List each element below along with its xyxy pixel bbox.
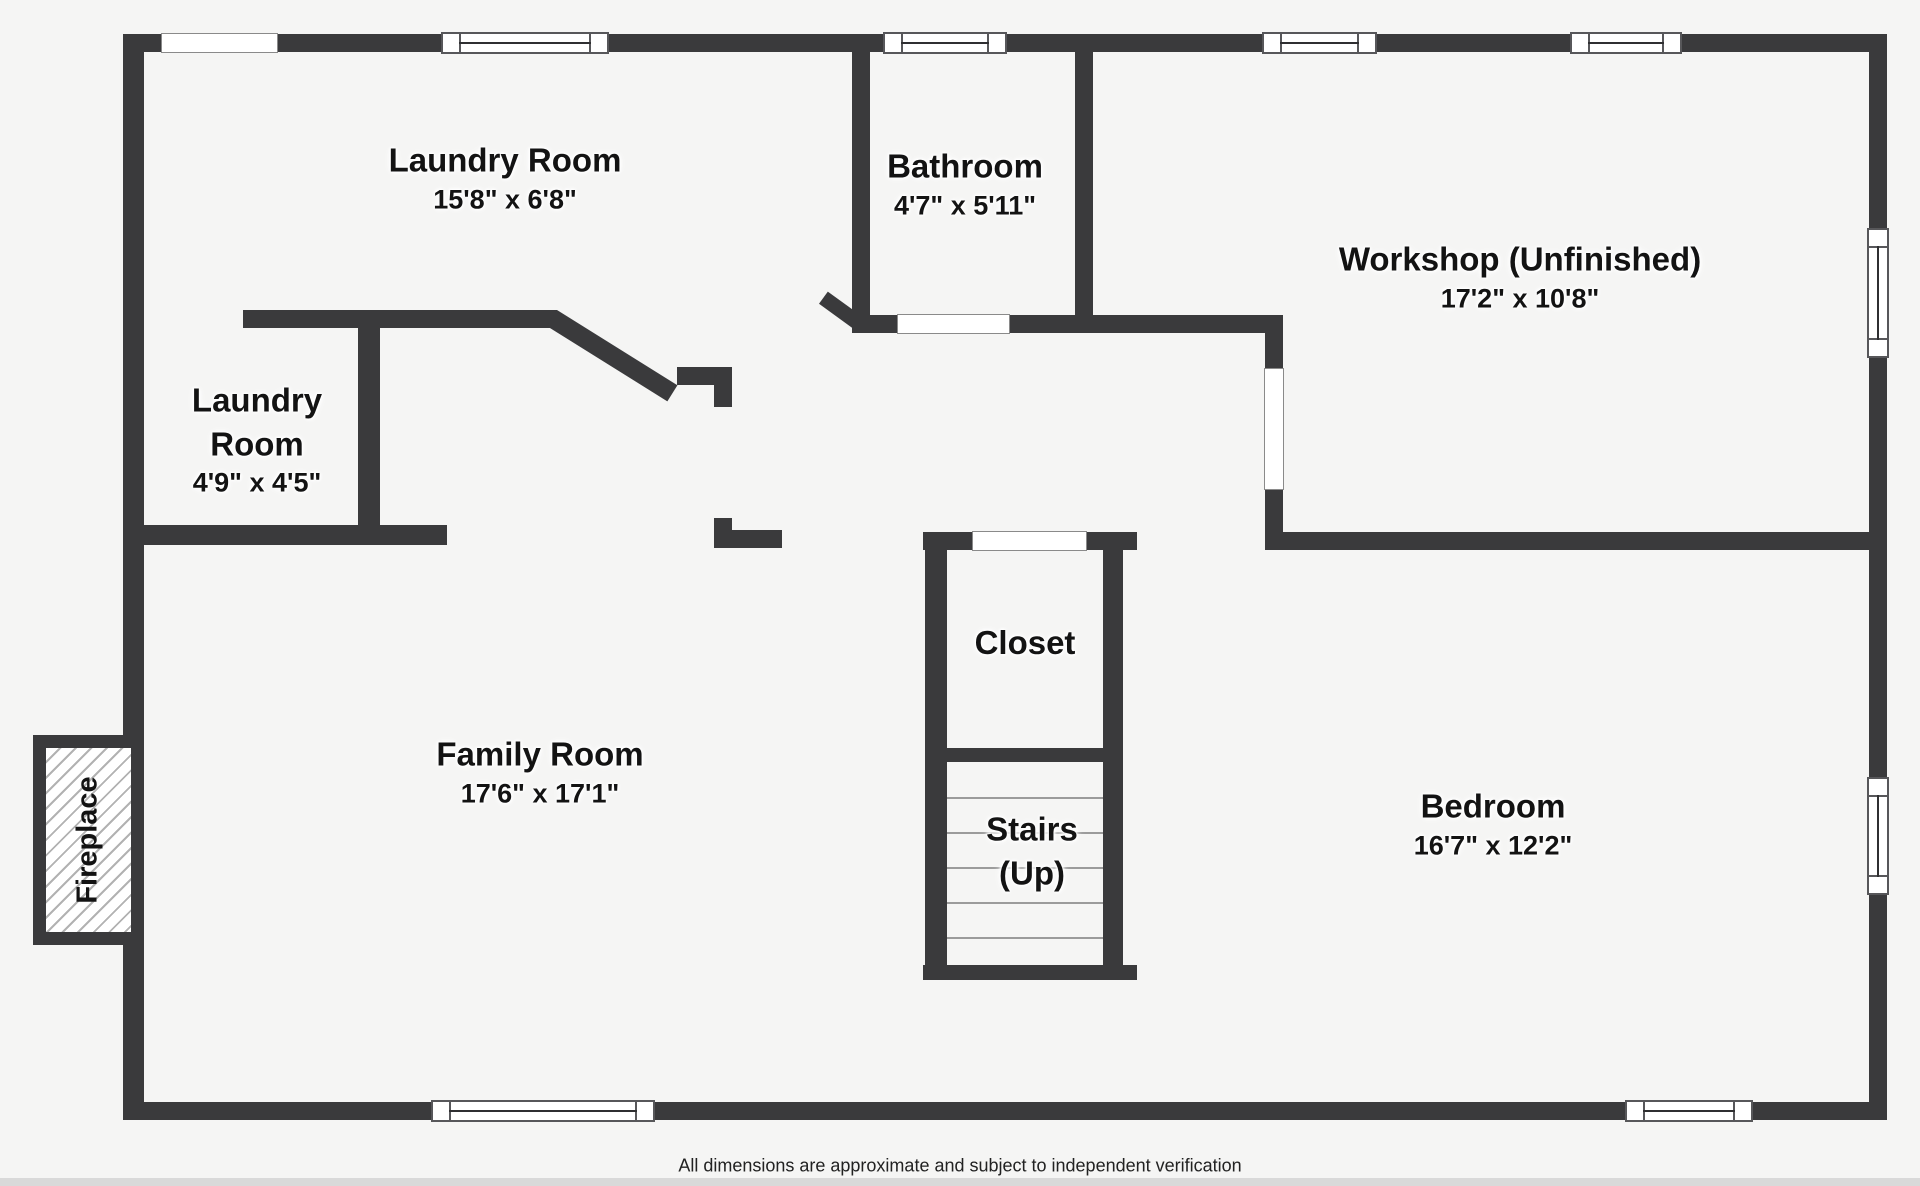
window-top-workshop-2 — [1570, 32, 1682, 54]
window-glass-line — [1588, 42, 1664, 44]
bottom-edge-strip — [0, 1178, 1920, 1186]
window-cap — [589, 34, 607, 52]
wall-hall-diagonal — [547, 310, 677, 401]
disclaimer-text: All dimensions are approximate and subje… — [678, 1156, 1241, 1177]
room-name: Laundry Room — [389, 138, 622, 182]
window-glass-line — [1877, 246, 1879, 340]
window-top-laundry — [441, 32, 609, 54]
room-dimensions: 4'9" x 4'5" — [192, 466, 322, 502]
floor-plan: Fireplace Laundry Room 15'8" x 6'8" Bath… — [0, 0, 1920, 1186]
wall-exterior-left — [123, 34, 144, 1120]
label-bedroom: Bedroom 16'7" x 12'2" — [1414, 784, 1573, 863]
wall-workshop-bedroom-divider — [1265, 532, 1887, 550]
wall-hall-stub-vertical — [714, 385, 732, 407]
window-right-bedroom — [1867, 777, 1889, 895]
window-glass-line — [459, 42, 591, 44]
window-right-workshop — [1867, 228, 1889, 358]
label-family-room: Family Room 17'6" x 17'1" — [436, 732, 643, 811]
room-name: (Up) — [986, 851, 1078, 895]
window-glass-line — [1877, 795, 1879, 877]
window-top-bathroom — [883, 32, 1007, 54]
room-dimensions: 16'7" x 12'2" — [1414, 828, 1573, 864]
wall-hall-L-horizontal — [732, 530, 782, 548]
label-closet: Closet — [975, 621, 1076, 665]
wall-bathroom-left — [852, 52, 870, 333]
wall-exterior-right — [1869, 34, 1887, 1120]
wall-stairs-bottom — [923, 965, 1137, 980]
room-name: Stairs — [986, 807, 1078, 851]
room-dimensions: 17'6" x 17'1" — [436, 776, 643, 812]
window-cap — [987, 34, 1005, 52]
window-cap — [1662, 34, 1680, 52]
window-cap — [1869, 875, 1887, 893]
wall-closet-left — [925, 532, 947, 980]
room-name: Laundry — [192, 379, 322, 423]
room-name: Bedroom — [1414, 784, 1573, 828]
room-name: Workshop (Unfinished) — [1339, 237, 1701, 281]
wall-closet-stairs-divider — [947, 748, 1103, 762]
wall-workshop-left-upper — [1265, 315, 1283, 368]
wall-closet-right — [1103, 532, 1123, 980]
window-top-workshop-1 — [1262, 32, 1377, 54]
label-workshop: Workshop (Unfinished) 17'2" x 10'8" — [1339, 237, 1701, 316]
wall-hall-stub-horizontal — [677, 367, 732, 385]
stair-tread-line — [947, 937, 1103, 939]
fireplace-label: Fireplace — [72, 776, 105, 903]
room-name: Bathroom — [887, 144, 1043, 188]
room-dimensions: 17'2" x 10'8" — [1339, 281, 1701, 317]
window-glass-line — [1280, 42, 1359, 44]
wall-bathroom-bottom-right — [1010, 315, 1283, 333]
label-stairs: Stairs (Up) — [986, 807, 1078, 894]
label-laundry-room-small: Laundry Room 4'9" x 4'5" — [192, 379, 322, 502]
door-opening-bathroom — [897, 314, 1010, 334]
label-laundry-room-main: Laundry Room 15'8" x 6'8" — [389, 138, 622, 217]
window-cap — [1733, 1102, 1751, 1120]
room-dimensions: 15'8" x 6'8" — [389, 182, 622, 218]
wall-hall-L-vertical — [714, 518, 732, 548]
wall-laundry-small-bottom — [123, 525, 447, 545]
wall-bathroom-right — [1075, 52, 1093, 333]
wall-laundry-small-top — [243, 310, 557, 328]
wall-opening-top-left — [161, 33, 278, 53]
stair-tread-line — [947, 902, 1103, 904]
window-glass-line — [1643, 1110, 1735, 1112]
window-bottom-bedroom — [1625, 1100, 1753, 1122]
window-cap — [635, 1102, 653, 1120]
door-opening-closet — [972, 531, 1087, 551]
wall-laundry-small-right — [358, 310, 380, 545]
room-name: Family Room — [436, 732, 643, 776]
door-opening-workshop — [1264, 368, 1284, 490]
window-glass-line — [901, 42, 989, 44]
room-dimensions: 4'7" x 5'11" — [887, 188, 1043, 224]
window-cap — [1357, 34, 1375, 52]
window-glass-line — [449, 1110, 637, 1112]
wall-exterior-bottom — [123, 1102, 1887, 1120]
stair-tread-line — [947, 797, 1103, 799]
window-cap — [1869, 338, 1887, 356]
room-name: Room — [192, 422, 322, 466]
room-name: Closet — [975, 621, 1076, 665]
label-bathroom: Bathroom 4'7" x 5'11" — [887, 144, 1043, 223]
window-bottom-family — [431, 1100, 655, 1122]
